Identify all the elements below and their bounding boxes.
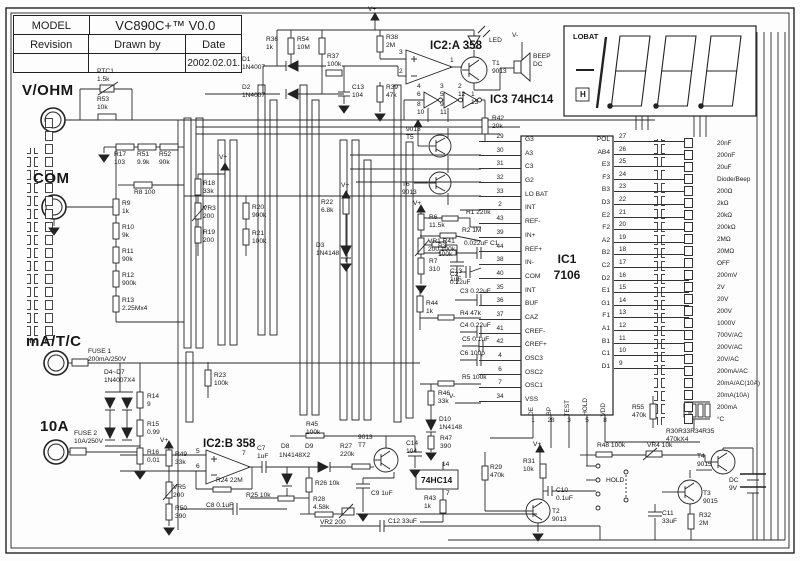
label-vplus-r18: V+ — [219, 154, 227, 162]
label-r50: R50 390 — [175, 505, 187, 521]
range-label: 2V — [717, 284, 725, 291]
label-r23: R23 100k — [214, 372, 228, 388]
revision-label: Revision — [14, 35, 88, 53]
ic1-left-pin-row: 33 LO BAT — [479, 188, 559, 202]
range-label: Diode/Beep — [717, 176, 750, 183]
label-c6: C6 100p — [460, 350, 485, 358]
label-r49: R49 33k — [175, 451, 187, 467]
pin-number: 18 — [614, 246, 689, 255]
label-ic2a-pin1: 1 — [450, 57, 454, 65]
pin-label: HOLD — [582, 398, 589, 416]
label-fuse2: FUSE 2 10A/250V — [74, 430, 103, 446]
ic1-left-pin-row: 35 INT — [479, 284, 559, 298]
range-row: 20MΩ — [684, 245, 760, 257]
pin-number: 12 — [614, 322, 689, 331]
ic1-left-pin-row: 6 OSC2 — [479, 366, 559, 380]
label-vminus-top: V- — [512, 32, 518, 40]
switch-contact — [684, 402, 693, 412]
label-r13: R13 2.25Mx4 — [122, 297, 147, 313]
label-c10: C10 0.1uF — [556, 487, 573, 503]
pin-label: D3 — [578, 199, 610, 206]
label-vplus-t2: V+ — [533, 441, 541, 449]
pin-number: 11 — [614, 335, 689, 344]
label-gate1-pins-a: 4 6 — [417, 83, 421, 99]
label-r52: R52 90k — [159, 151, 171, 167]
ic1-bottom-pin: HOLD 5 — [578, 384, 596, 430]
label-r30-cluster: R30R33R34R35 470kX4 — [666, 428, 714, 444]
range-label: 200V — [717, 308, 732, 315]
hc14-box-label: 74HC14 — [421, 475, 452, 485]
ic1-right-pin-row: F1 13 — [578, 309, 688, 322]
model-label: MODEL — [14, 16, 89, 34]
switch-contact — [684, 222, 693, 232]
label-r31: R31 10k — [523, 458, 535, 474]
range-row: 200mA/AC — [684, 365, 760, 377]
ic1-right-pin-row: G1 14 — [578, 297, 688, 310]
label-r7: R7 310 — [429, 258, 440, 274]
switch-contact — [684, 234, 693, 244]
pin-number: 19 — [614, 234, 689, 243]
ic1-left-pin-row: 29 G3 — [479, 133, 559, 147]
pin-number: 31 — [479, 160, 521, 169]
pin-label: IN+ — [525, 232, 535, 239]
label-gate1-pins-b: 8 10 — [417, 101, 424, 117]
label-r32: R32 2M — [699, 512, 711, 528]
pin-label: BUF — [525, 300, 538, 307]
range-label: 20V/AC — [717, 356, 739, 363]
ic1-right-pin-row: B3 23 — [578, 183, 688, 196]
pin-label: INT — [525, 287, 536, 294]
pin-label: D1 — [578, 363, 610, 370]
ic1-bottom-pin: DE 1 — [524, 384, 542, 430]
ic1-left-pin-row: 43 REF- — [479, 215, 559, 229]
range-label: 700V/AC — [717, 332, 743, 339]
label-r8: R8 100 — [134, 189, 155, 197]
switch-contact — [684, 342, 693, 352]
range-row: 2V — [684, 281, 760, 293]
ic1-bottom-pin: VDD 8 — [596, 384, 614, 430]
pin-label: LO BAT — [525, 191, 548, 198]
switch-contact — [684, 246, 693, 256]
switch-contact — [684, 258, 693, 268]
pin-number: 37 — [479, 311, 521, 320]
label-vplus-top: V+ — [368, 6, 376, 14]
pin-number: 15 — [614, 284, 689, 293]
label-t4: T4 9015 — [697, 453, 712, 469]
pin-number: 27 — [614, 133, 689, 142]
switch-contact — [684, 162, 693, 172]
pin-label: B1 — [578, 338, 610, 345]
range-label: 20uF — [717, 164, 732, 171]
switch-contact — [684, 270, 693, 280]
label-r24: R24 22M — [216, 477, 243, 485]
ic1-right-pin-row: B1 11 — [578, 335, 688, 348]
revision-value — [14, 54, 88, 72]
drawn-by-label: Drawn by — [88, 35, 185, 53]
pin-label: G2 — [525, 177, 534, 184]
pin-label: D2 — [578, 275, 610, 282]
terminal-matc-label: mA/T/C — [26, 333, 82, 351]
label-c2: C2 0.22uF — [450, 271, 471, 287]
label-t2: T2 9013 — [552, 508, 567, 524]
label-r55: R55 470k — [632, 404, 646, 420]
range-label: 200kΩ — [717, 224, 736, 231]
pin-number: 34 — [479, 393, 521, 402]
label-r20: R20 900k — [252, 204, 266, 220]
label-c1: 0.022uF C1 — [464, 240, 498, 248]
label-d4d7: D4~D7 1N4007X4 — [104, 369, 135, 385]
label-gate3-pins-b: 1 13 — [471, 91, 478, 107]
pin-number: 8 — [596, 417, 614, 424]
pin-number: 16 — [614, 272, 689, 281]
ic1-right-pin-row: A1 12 — [578, 322, 688, 335]
range-label: 200Ω — [717, 188, 732, 195]
pin-number: 17 — [614, 259, 689, 268]
ic1-right-pin-row: AB4 26 — [578, 146, 688, 159]
label-c12: C12 33uF — [388, 518, 417, 526]
date-label: Date — [185, 35, 241, 53]
pin-number: 10 — [614, 347, 689, 356]
ic1-right-pin-row: POL 27 — [578, 133, 688, 146]
switch-contact — [684, 366, 693, 376]
ic1-left-pin-row: 31 C3 — [479, 160, 559, 174]
pin-number: 21 — [614, 209, 689, 218]
ic1-left-pin-row: 40 COM — [479, 270, 559, 284]
range-row: 20V — [684, 293, 760, 305]
label-vr5: VR5 200 — [173, 484, 186, 500]
switch-contact — [684, 414, 693, 424]
label-ic2b-pin6: 6 — [196, 463, 200, 471]
label-battery: DC 9V — [729, 477, 739, 493]
ic1-right-pin-row: F3 24 — [578, 171, 688, 184]
pin-number: 40 — [479, 270, 521, 279]
ic1-left-pin-row: 36 BUF — [479, 297, 559, 311]
pin-label: COM — [525, 273, 540, 280]
pin-label: REF- — [525, 218, 540, 225]
label-c4: C4 0.22uF — [460, 322, 491, 330]
label-r3: R3 100k — [438, 243, 452, 259]
ic1-right-pins: POL 27 AB4 26 E3 25 F3 24 B3 23 D3 22 E2… — [578, 133, 688, 372]
ic1-left-pin-row: 32 G2 — [479, 174, 559, 188]
pin-label: CREF+ — [525, 341, 547, 348]
pin-label: AB4 — [578, 149, 610, 156]
label-vplus-r22: V+ — [341, 182, 349, 190]
label-r44: R44 1k — [426, 300, 438, 316]
range-label: 20MΩ — [717, 248, 734, 255]
title-row-headers: Revision Drawn by Date — [14, 34, 241, 53]
range-row: 20kΩ — [684, 209, 760, 221]
label-r6: R6 11.5k — [429, 214, 445, 230]
label-d10: D10 1N4148 — [439, 416, 462, 432]
label-beep: BEEP DC — [533, 53, 551, 69]
ic3-label: IC3 74HC14 — [490, 94, 553, 108]
label-r25: R25 10k — [246, 492, 271, 500]
range-row: 20nF — [684, 137, 760, 149]
label-r18: R18 33k — [203, 180, 215, 196]
label-r45: R45 100k — [306, 421, 320, 437]
range-row: 1000V — [684, 317, 760, 329]
range-row: °C — [684, 413, 760, 425]
label-ic2a-pin2: 2 — [399, 68, 403, 76]
pin-label: CREF- — [525, 328, 545, 335]
range-row: 2MΩ — [684, 233, 760, 245]
label-d2: D2 1N4007 — [242, 84, 265, 100]
label-t1: T1 9013 — [492, 60, 507, 76]
ic1-right-pin-row: B2 18 — [578, 246, 688, 259]
label-c3: C3 0.22uF — [460, 288, 491, 296]
range-label: °C — [717, 416, 724, 423]
pin-number: 28 — [542, 417, 560, 424]
pin-label: B2 — [578, 249, 610, 256]
lcd-hold-symbol: H — [580, 90, 586, 99]
ic1-right-pin-row: E3 25 — [578, 158, 688, 171]
pin-label: G3 — [525, 136, 534, 143]
pin-label: OSC3 — [525, 355, 543, 362]
ic1-left-pin-row: 37 CAZ — [479, 311, 559, 325]
ic2a-label: IC2:A 358 — [430, 40, 482, 54]
pin-label: E1 — [578, 287, 610, 294]
label-led: LED — [489, 37, 502, 45]
pin-label: F2 — [578, 224, 610, 231]
label-vplus-r6: V+ — [413, 200, 421, 208]
label-ic2b-pin7: 7 — [242, 450, 246, 458]
switch-contact — [684, 198, 693, 208]
label-r17: R17 103 — [114, 151, 126, 167]
pin-number: 30 — [479, 147, 521, 156]
label-r28: R28 4.58k — [313, 496, 329, 512]
label-d8d9-part: 1N4148X2 — [279, 452, 310, 460]
label-t5: 9013 T5 — [406, 126, 421, 142]
switch-contact — [684, 282, 693, 292]
range-row: Diode/Beep — [684, 173, 760, 185]
label-d9: D9 — [305, 443, 313, 451]
pin-number: 14 — [614, 297, 689, 306]
range-label: 200mV — [717, 272, 737, 279]
pin-label: F1 — [578, 312, 610, 319]
range-label: 1000V — [717, 320, 735, 327]
ic1-right-pin-row: E1 15 — [578, 284, 688, 297]
label-r42: R42 20k — [492, 115, 504, 131]
label-r1: R1 220k — [466, 209, 491, 217]
label-c9: C9 1uF — [371, 490, 393, 498]
label-r47: R47 390 — [440, 435, 452, 451]
pin-label: F3 — [578, 174, 610, 181]
ic1-right-pin-row: C2 17 — [578, 259, 688, 272]
ic1-left-pin-row: 42 CREF+ — [479, 338, 559, 352]
label-r9: R9 1k — [122, 200, 130, 216]
label-r37: R37 100k — [327, 53, 341, 69]
label-r4: R4 47k — [460, 310, 481, 318]
pin-number: 20 — [614, 221, 689, 230]
range-row: 200kΩ — [684, 221, 760, 233]
range-row: OFF — [684, 257, 760, 269]
label-r38: R38 2M — [386, 34, 398, 50]
range-row: 20mA/AC(10A) — [684, 377, 760, 389]
title-block: MODEL VC890C+™ V0.0 Revision Drawn by Da… — [13, 15, 242, 73]
label-r2: R2 1M — [462, 227, 481, 235]
ic1-right-pin-row: F2 20 — [578, 221, 688, 234]
switch-contact — [684, 390, 693, 400]
label-r43: R43 1k — [424, 495, 436, 511]
ic1-left-pin-row: 4 OSC3 — [479, 352, 559, 366]
ic1-bottom-pin: BP 28 — [542, 384, 560, 430]
range-label: OFF — [717, 260, 730, 267]
pin-number: 24 — [614, 171, 689, 180]
pin-label: REF+ — [525, 246, 542, 253]
label-vr2: VR2 200 — [320, 519, 346, 527]
range-label: 2kΩ — [717, 200, 729, 207]
switch-contact — [684, 186, 693, 196]
pin-number: 13 — [614, 309, 689, 318]
range-label: 200V/AC — [717, 344, 743, 351]
pin-label: A3 — [525, 150, 533, 157]
range-label: 20nF — [717, 140, 732, 147]
ic1-right-pin-row: D1 9 — [578, 360, 688, 373]
label-r39: R39 47k — [386, 84, 398, 100]
range-label: 20V — [717, 296, 728, 303]
ic1-bottom-pin: TEST 3 — [560, 384, 578, 430]
label-t6: T6 9013 — [402, 181, 417, 197]
switch-contact — [684, 294, 693, 304]
label-t7: 9013 T7 — [358, 434, 373, 450]
label-t3: T3 9015 — [703, 490, 718, 506]
label-r12: R12 900k — [122, 272, 136, 288]
pin-number: 25 — [614, 158, 689, 167]
range-label: 200mA/AC — [717, 368, 748, 375]
label-r15: R15 0.99 — [147, 421, 160, 437]
label-hc14-pin14: 14 — [442, 461, 449, 469]
range-label: 20mA(10A) — [717, 392, 749, 399]
label-vr3: VR3 200 — [203, 205, 216, 221]
switch-contact — [684, 138, 693, 148]
ic1-right-pin-row: D2 16 — [578, 272, 688, 285]
pin-label: A2 — [578, 237, 610, 244]
ic1-right-pin-row: D3 22 — [578, 196, 688, 209]
label-r51: R51 9.9k — [137, 151, 149, 167]
date-value: 2002.02.01. — [185, 54, 241, 72]
label-c8: C8 0.1uF — [206, 502, 233, 510]
ic1-left-pin-row: 41 CREF- — [479, 325, 559, 339]
pin-label: C1 — [578, 350, 610, 357]
label-ic2b-pin5: 5 — [196, 448, 200, 456]
pin-label: C3 — [525, 163, 533, 170]
switch-contact — [684, 330, 693, 340]
range-row: 200mV — [684, 269, 760, 281]
label-gate3-pins-a: 2 12 — [458, 83, 465, 99]
label-r29: R29 470k — [490, 464, 504, 480]
label-c11: C11 33uF — [662, 510, 677, 526]
pin-label: B3 — [578, 186, 610, 193]
label-r54: R54 10M — [297, 36, 310, 52]
label-vminus-vss: V- — [449, 393, 455, 401]
pin-label: INT — [525, 204, 536, 211]
switch-contact — [684, 354, 693, 364]
lcd-lobat-label: LOBAT — [573, 33, 598, 42]
pin-number: 39 — [479, 229, 521, 238]
label-r36: R36 1k — [266, 36, 278, 52]
range-row: 700V/AC — [684, 329, 760, 341]
pin-number: 22 — [614, 196, 689, 205]
switch-contact — [684, 210, 693, 220]
label-c13a: C13 104 — [352, 84, 364, 100]
label-r16: R16 0.01 — [147, 449, 160, 465]
label-r26: R26 10k — [315, 480, 340, 488]
label-r11: R11 90k — [122, 248, 134, 264]
range-row: 200Ω — [684, 185, 760, 197]
pin-label: BP — [546, 407, 553, 416]
range-list: 20nF 200nF 20uF Diode/Beep 200Ω 2kΩ 20kΩ… — [684, 137, 760, 425]
label-c7: C7 1uF — [257, 445, 268, 461]
pin-label: POL — [578, 136, 610, 143]
label-vplus-left: V+ — [160, 437, 168, 445]
pin-label: CAZ — [525, 314, 538, 321]
range-row: 20V/AC — [684, 353, 760, 365]
ic1-left-pin-row: 2 INT — [479, 201, 559, 215]
ic1-left-pin-row: 30 A3 — [479, 147, 559, 161]
title-row-values: 2002.02.01. — [14, 53, 241, 72]
label-r14: R14 9 — [147, 393, 159, 409]
ic1-right-pin-row: A2 19 — [578, 234, 688, 247]
label-r21: R21 100k — [252, 230, 266, 246]
label-r53: R53 10k — [97, 96, 109, 112]
label-c14: C14 104 — [406, 440, 418, 456]
pin-label: G1 — [578, 300, 610, 307]
pin-number: 23 — [614, 183, 689, 192]
label-hold: HOLD — [606, 477, 624, 485]
terminal-com-label: COM — [33, 170, 70, 188]
ic1-left-pins: 29 G3 30 A3 31 C3 32 G2 33 LO BAT 2 INT … — [479, 133, 559, 407]
label-r22: R22 6.8k — [321, 199, 333, 215]
label-r27: R27 220k — [340, 443, 354, 459]
range-row: 200V — [684, 305, 760, 317]
pin-number: 9 — [614, 360, 689, 369]
ic1-bottom-pins: DE 1 BP 28 TEST 3 HOLD 5 VDD 8 — [524, 384, 614, 430]
range-label: 20kΩ — [717, 212, 732, 219]
pin-number: 1 — [524, 417, 542, 424]
terminal-10a-label: 10A — [40, 418, 69, 436]
range-row: 200V/AC — [684, 341, 760, 353]
label-r48: R48 100k — [597, 442, 625, 450]
label-r19: R19 200 — [203, 229, 215, 245]
schematic-page: MODEL VC890C+™ V0.0 Revision Drawn by Da… — [0, 0, 800, 561]
switch-contact — [684, 378, 693, 388]
range-label: 200nF — [717, 152, 735, 159]
label-ptc1: PTC1 1.5k — [97, 68, 114, 84]
label-d1: D1 1N4007 — [242, 56, 265, 72]
label-hc14-pin7: 7 — [446, 490, 450, 498]
terminal-vohm-label: V/OHM — [22, 82, 74, 100]
label-gate2-pins-b: 9 11 — [440, 101, 447, 117]
switch-contact — [684, 318, 693, 328]
range-label: 2MΩ — [717, 236, 731, 243]
pin-number: 4 — [479, 352, 521, 361]
pin-number: 3 — [560, 417, 578, 424]
label-c5: C5 0.1uF — [462, 336, 489, 344]
ic2b-label: IC2:B 358 — [203, 438, 255, 452]
pin-label: VDD — [600, 403, 607, 417]
pin-label: TEST — [564, 400, 571, 416]
pin-number: 38 — [479, 256, 521, 265]
model-value: VC890C+™ V0.0 — [89, 16, 241, 34]
pin-number: 29 — [479, 133, 521, 142]
ic1-right-pin-row: E2 21 — [578, 209, 688, 222]
title-row-model: MODEL VC890C+™ V0.0 — [14, 16, 241, 34]
range-row: 20mA(10A) — [684, 389, 760, 401]
label-fuse1: FUSE 1 200mA/250V — [88, 348, 126, 364]
switch-contact — [684, 306, 693, 316]
pin-number: 33 — [479, 188, 521, 197]
range-row: 20uF — [684, 161, 760, 173]
